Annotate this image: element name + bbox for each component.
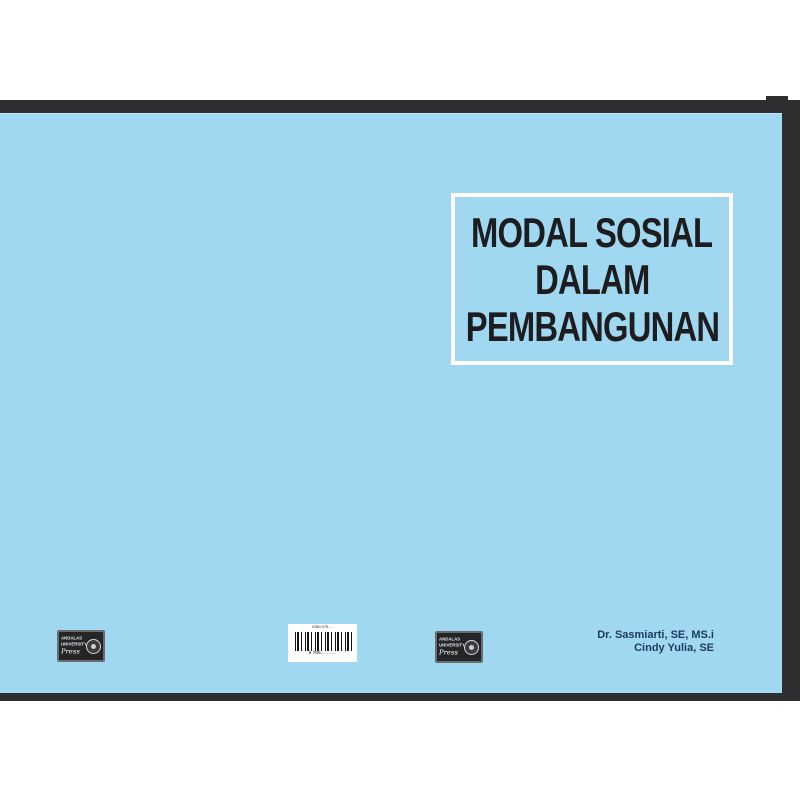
publisher-script: Press	[61, 649, 80, 656]
university-seal-icon	[86, 639, 101, 654]
publisher-line-2: UNIVERSITY	[61, 643, 86, 647]
book-cover-spread: MODAL SOSIAL DALAM PEMBANGUNAN Dr. Sasmi…	[0, 113, 782, 693]
university-seal-icon	[464, 640, 479, 655]
backdrop-notch	[766, 96, 788, 102]
title-line-2: DALAM	[535, 256, 649, 303]
isbn-barcode: ISBN 978-… 9 786… ……	[288, 624, 357, 662]
publisher-line-1: ANDALAS	[439, 638, 460, 642]
publisher-logo-back: ANDALAS UNIVERSITY Press	[57, 630, 105, 662]
publisher-line-1: ANDALAS	[61, 637, 82, 641]
publisher-logo-text: ANDALAS UNIVERSITY Press	[61, 636, 86, 656]
title-line-3: PEMBANGUNAN	[465, 303, 719, 350]
barcode-bars-icon	[295, 632, 352, 651]
book-photo-backdrop: MODAL SOSIAL DALAM PEMBANGUNAN Dr. Sasmi…	[0, 100, 800, 701]
publisher-line-2: UNIVERSITY	[439, 644, 464, 648]
barcode-digits: 9 786… ……	[297, 651, 349, 657]
publisher-logo-front: ANDALAS UNIVERSITY Press	[435, 631, 483, 663]
title-line-1: MODAL SOSIAL	[471, 209, 712, 256]
publisher-logo-text: ANDALAS UNIVERSITY Press	[439, 637, 464, 657]
publisher-script: Press	[439, 650, 458, 657]
isbn-text: ISBN 978-…	[302, 626, 342, 629]
title-box: MODAL SOSIAL DALAM PEMBANGUNAN	[451, 193, 733, 365]
product-photo: MODAL SOSIAL DALAM PEMBANGUNAN Dr. Sasmi…	[0, 0, 800, 800]
